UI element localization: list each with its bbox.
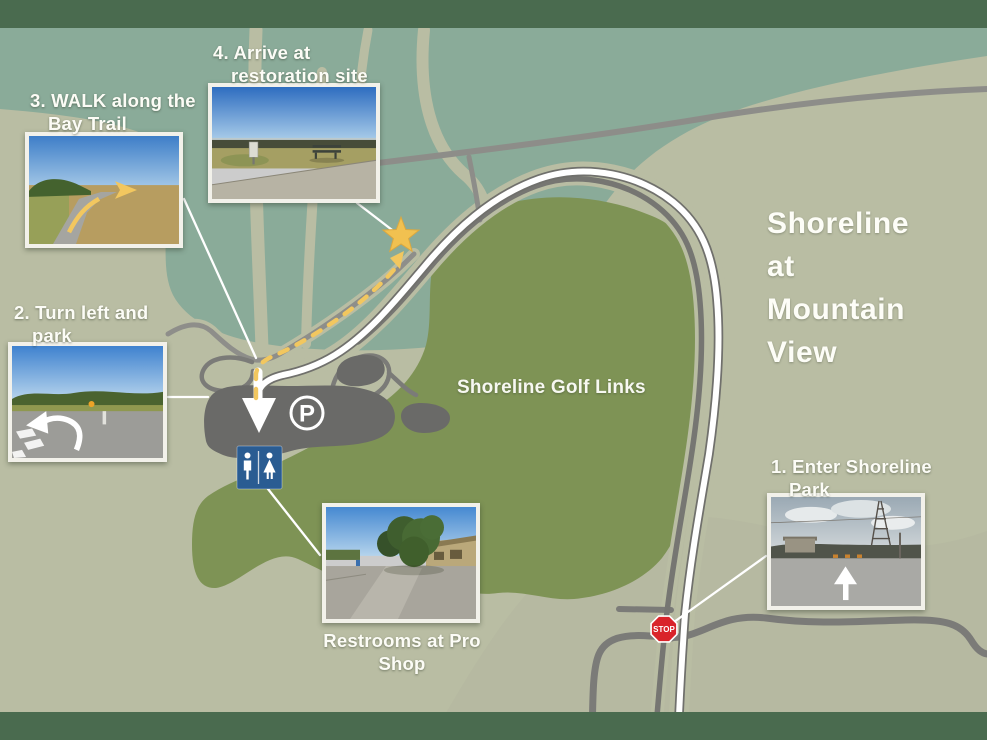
label-step4-line1: 4. Arrive at xyxy=(213,42,368,65)
photo-step3-bay-trail xyxy=(25,132,183,248)
bollard xyxy=(103,411,107,424)
label-step2-line2: park xyxy=(32,325,148,348)
label-step3: 3. WALK along the Bay Trail xyxy=(30,90,196,135)
svg-text:STOP: STOP xyxy=(653,625,675,634)
shoreline-map-poster: P STOP xyxy=(0,0,987,740)
label-step3-line1: 3. WALK along the xyxy=(30,90,196,113)
poster-title-line4: View xyxy=(767,331,909,374)
photo-restrooms-pro-shop xyxy=(322,503,480,623)
label-step2: 2. Turn left and park xyxy=(14,302,148,347)
svg-text:P: P xyxy=(299,401,315,428)
top-band xyxy=(0,0,987,28)
label-step4-line2: restoration site xyxy=(231,65,368,88)
poster-title: Shoreline at Mountain View xyxy=(767,202,909,374)
poster-title-line3: Mountain xyxy=(767,288,909,331)
label-step4: 4. Arrive at restoration site xyxy=(213,42,368,87)
restroom-icon xyxy=(237,446,282,489)
photo-step2-turn-left xyxy=(8,342,167,462)
bottom-band xyxy=(0,712,987,740)
label-restrooms-line1: Restrooms at Pro xyxy=(317,630,487,653)
interpretive-sign xyxy=(249,142,258,157)
label-step1-line1: 1. Enter Shoreline xyxy=(771,456,932,479)
label-step1: 1. Enter Shoreline Park xyxy=(771,456,932,501)
label-step2-line1: 2. Turn left and xyxy=(14,302,148,325)
stop-sign-icon: STOP xyxy=(651,616,677,642)
photo-step1-park-entrance xyxy=(767,493,925,610)
poster-title-line2: at xyxy=(767,245,909,288)
label-restrooms-line2: Shop xyxy=(317,653,487,676)
poster-title-line1: Shoreline xyxy=(767,202,909,245)
photo-step4-restoration-site xyxy=(208,83,380,203)
label-step1-line2: Park xyxy=(789,479,932,502)
label-restrooms: Restrooms at Pro Shop xyxy=(317,630,487,675)
label-step3-line2: Bay Trail xyxy=(48,113,196,136)
golf-course-label: Shoreline Golf Links xyxy=(457,377,646,399)
